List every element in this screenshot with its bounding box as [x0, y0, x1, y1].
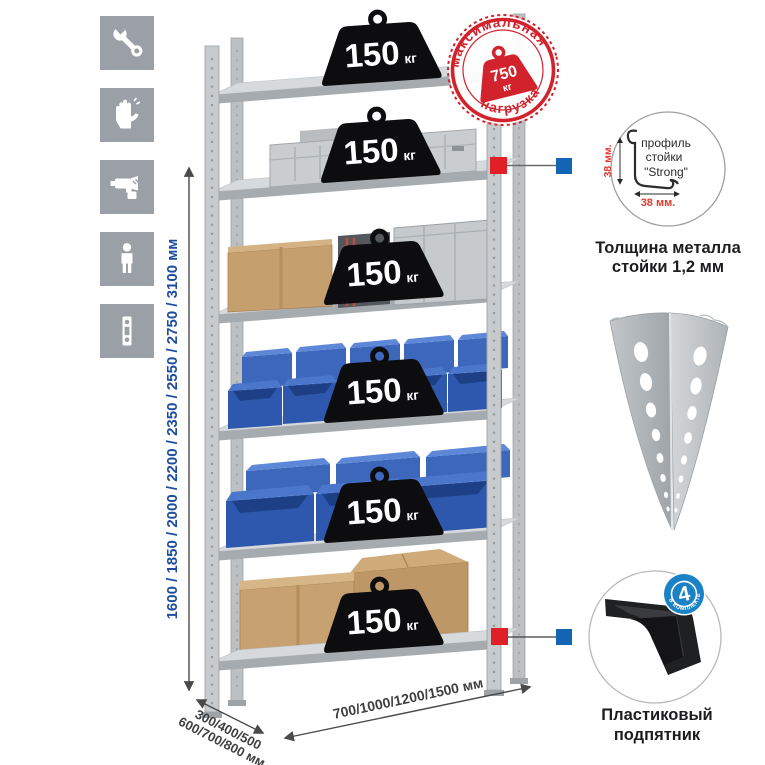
height-dimension: 1600 / 1850 / 2000 / 2200 / 2350 / 2550 … [164, 168, 189, 690]
marker-blue-bottom [556, 629, 572, 645]
load-value: 150 [342, 131, 400, 172]
width-dimension-label: 700/1000/1200/1500 мм [331, 674, 484, 721]
profile-width-dim-label: 38 мм. [641, 197, 676, 209]
profile-label-1: профиль [641, 136, 691, 150]
profile-height-dim-label: 38 мм. [602, 144, 614, 177]
load-weight-badge: 150 кг [317, 8, 441, 86]
depth-dimension: 300/400/500 600/700/800 мм [176, 700, 274, 765]
product-infographic: 1600 / 1850 / 2000 / 2200 / 2350 / 2550 … [0, 0, 765, 765]
load-unit: кг [404, 51, 418, 67]
profile-caption-2: стойки 1,2 мм [612, 258, 724, 276]
marker-red-bottom [491, 628, 508, 645]
cardboard-box [228, 239, 332, 312]
load-unit: кг [406, 618, 420, 634]
steel-angle-post-image [610, 313, 728, 530]
foot-caption-1: Пластиковый [601, 706, 712, 724]
plastic-foot-callout: 4 В КОМПЛЕКТЕ Пластиковый подпятник [589, 568, 721, 744]
load-weight-badge: 150 кг [316, 105, 440, 183]
load-unit: кг [406, 270, 420, 286]
profile-label-2: стойки [646, 150, 683, 164]
height-dimension-label: 1600 / 1850 / 2000 / 2200 / 2350 / 2550 … [164, 239, 181, 620]
foot-caption-2: подпятник [614, 726, 701, 744]
load-value: 150 [345, 601, 403, 642]
load-value: 150 [345, 253, 403, 294]
load-unit: кг [406, 508, 420, 524]
max-load-stamp: максимальная нагрузка 750 кг [436, 3, 569, 137]
profile-callout: 38 мм. 38 мм. профиль стойки "Strong" То… [595, 112, 741, 276]
scene: 1600 / 1850 / 2000 / 2200 / 2350 / 2550 … [0, 0, 765, 765]
load-value: 150 [343, 34, 401, 75]
load-value: 150 [345, 371, 403, 412]
load-unit: кг [406, 388, 420, 404]
load-value: 150 [345, 491, 403, 532]
profile-label-3: "Strong" [644, 165, 688, 179]
profile-caption-1: Толщина металла [595, 239, 741, 257]
load-unit: кг [403, 148, 417, 164]
marker-blue-top [556, 158, 572, 174]
marker-red-top [490, 157, 507, 174]
